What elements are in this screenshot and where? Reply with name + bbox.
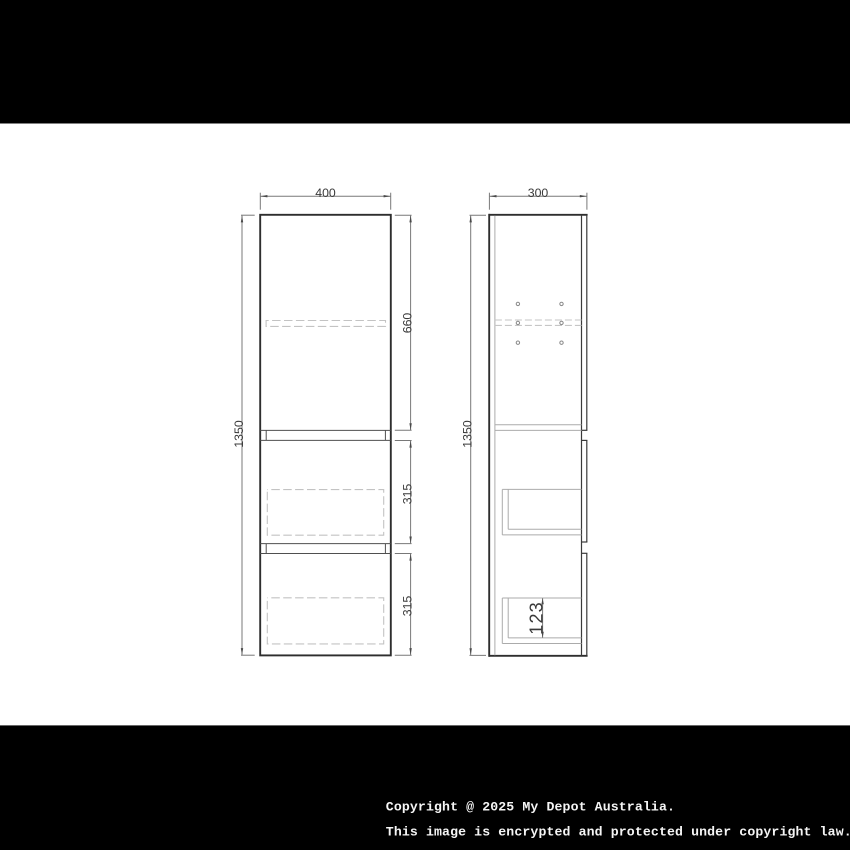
svg-text:300: 300 (528, 186, 549, 200)
svg-text:This image is encrypted and pr: This image is encrypted and protected un… (386, 825, 850, 840)
svg-text:315: 315 (401, 484, 415, 505)
svg-text:1350: 1350 (232, 420, 246, 448)
svg-text:660: 660 (401, 313, 415, 334)
svg-text:315: 315 (401, 596, 415, 617)
svg-text:123: 123 (527, 601, 547, 635)
svg-text:400: 400 (315, 186, 336, 200)
svg-text:Copyright @ 2025 My Depot Aust: Copyright @ 2025 My Depot Australia. (386, 800, 675, 815)
svg-text:1350: 1350 (461, 420, 475, 448)
